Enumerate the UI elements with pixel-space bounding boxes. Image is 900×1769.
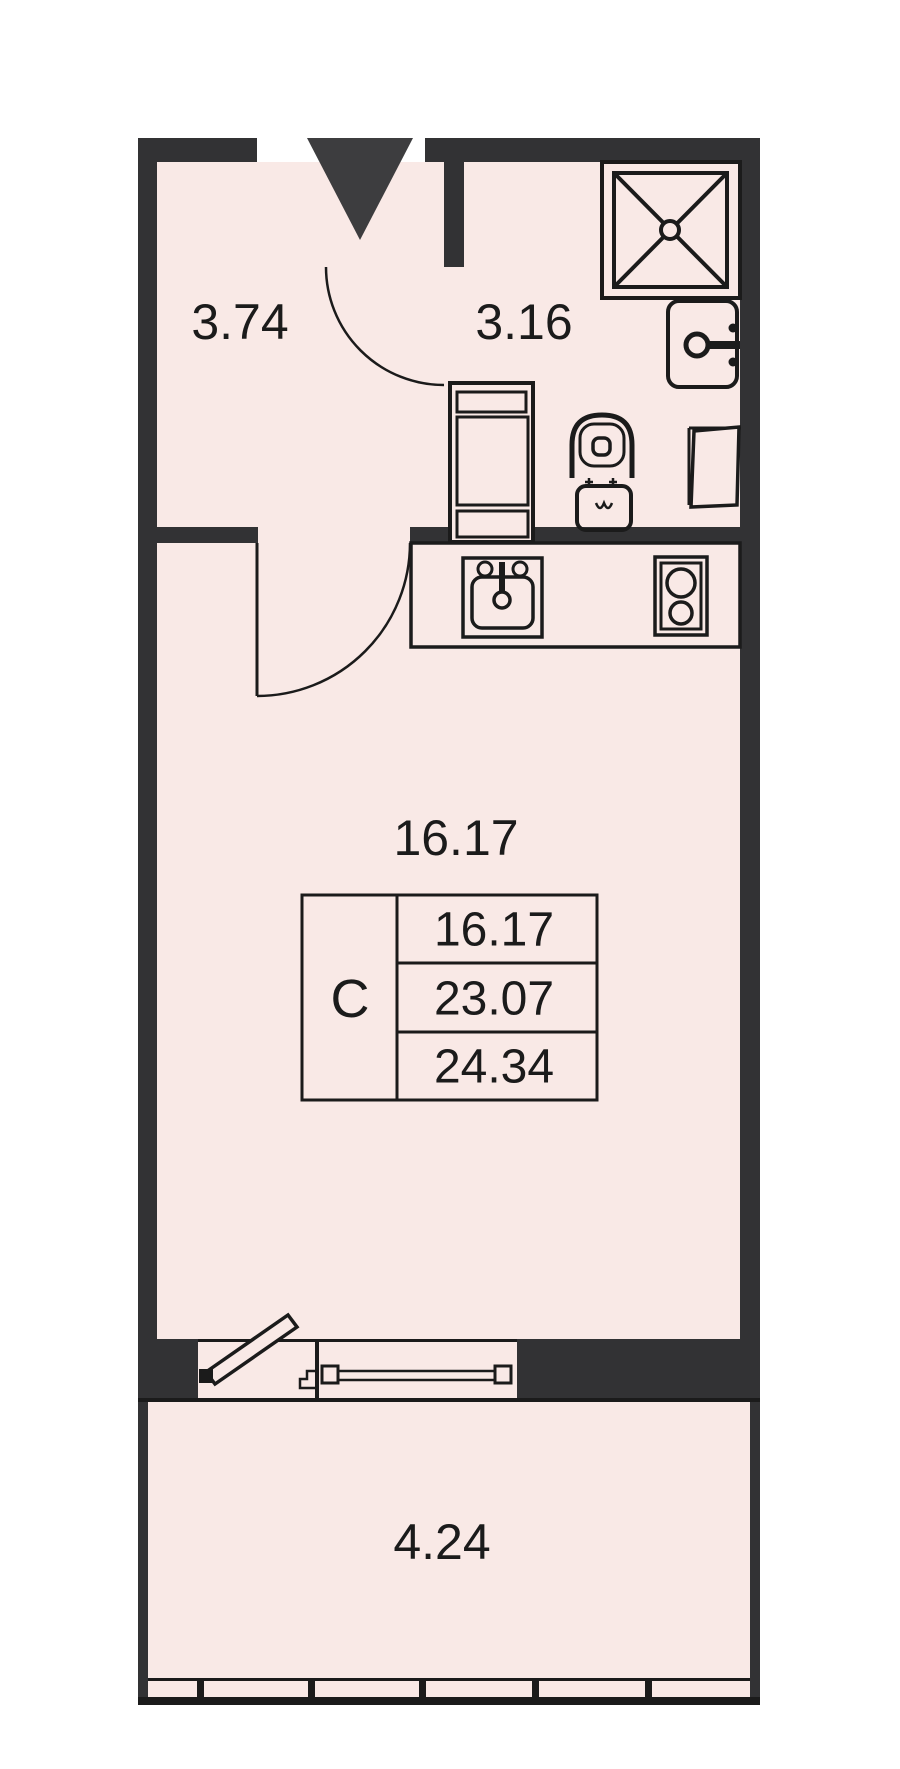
floor-plan: 3.74 3.16 16.17 4.24 C 16.17 23.07 24.34	[0, 0, 900, 1769]
bottom-wall-left	[138, 1339, 198, 1400]
sink-tap-dot	[729, 324, 738, 333]
glazing-mullion	[645, 1678, 652, 1705]
apartment-type-label: C	[331, 969, 370, 1029]
balcony-boundary-line	[138, 1398, 760, 1402]
kitchen-faucet-knob	[494, 592, 510, 608]
bathroom-area-label: 3.16	[475, 294, 572, 350]
glazing-mullion	[419, 1678, 426, 1705]
washing-machine-door	[457, 417, 528, 505]
balcony-right-wall	[750, 1402, 760, 1704]
kitchen	[411, 543, 740, 647]
glazing-outer-line	[138, 1697, 760, 1705]
top-wall-right	[425, 138, 760, 162]
hallway-area-label: 3.74	[191, 294, 288, 350]
balcony-area-label: 4.24	[393, 1514, 490, 1570]
glazing-inner-line	[148, 1678, 750, 1681]
glazing-mullion	[308, 1678, 315, 1705]
bathroom-sink-faucet-knob	[686, 334, 708, 356]
area-without-balcony-value: 23.07	[434, 973, 554, 1026]
floor-plan-drawing: 3.74 3.16 16.17 4.24 C 16.17 23.07 24.34	[0, 0, 900, 1769]
bathroom-wall-stub	[444, 162, 464, 267]
sink-tap-dot	[729, 358, 738, 367]
glazing-mullion	[532, 1678, 539, 1705]
total-area-value: 24.34	[434, 1041, 554, 1094]
shower-drain-icon	[661, 221, 679, 239]
hallway-divider-wall	[157, 527, 258, 543]
washing-machine-base	[457, 511, 528, 537]
bathroom-door-leaf	[691, 427, 739, 507]
window-frame-end	[495, 1366, 511, 1383]
washing-machine	[450, 383, 533, 542]
balcony-door-hinge	[199, 1369, 213, 1383]
bathroom-door	[689, 427, 741, 507]
living-room-area-label: 16.17	[393, 810, 518, 866]
living-area-value: 16.17	[434, 904, 554, 957]
balcony-left-wall	[138, 1402, 148, 1704]
left-wall	[138, 138, 157, 1350]
bottom-opening-edge	[198, 1339, 517, 1342]
right-wall	[740, 138, 760, 1400]
window-frame-end	[322, 1366, 338, 1383]
glazing-mullion	[197, 1678, 204, 1705]
washing-machine-panel	[457, 392, 526, 412]
bottom-wall-right	[517, 1339, 760, 1400]
